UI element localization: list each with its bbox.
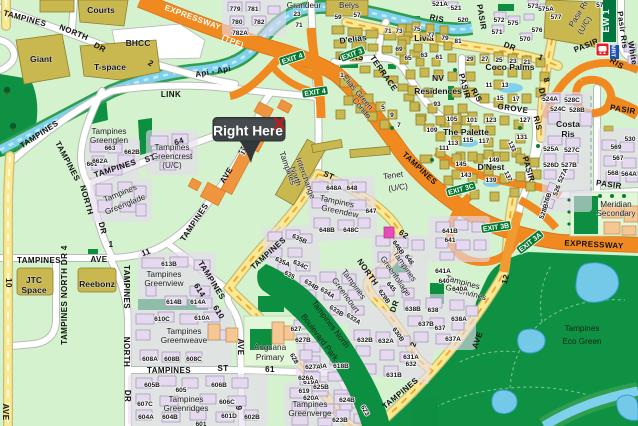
svg-text:Belys: Belys bbox=[339, 1, 359, 10]
svg-text:610C: 610C bbox=[154, 316, 170, 323]
svg-text:57: 57 bbox=[353, 12, 361, 19]
svg-text:Angsana: Angsana bbox=[254, 343, 287, 352]
svg-text:618B: 618B bbox=[333, 363, 349, 370]
svg-text:71: 71 bbox=[384, 28, 392, 35]
svg-text:9: 9 bbox=[234, 406, 243, 411]
svg-text:Greencrest: Greencrest bbox=[152, 152, 193, 161]
svg-text:Greenglen: Greenglen bbox=[90, 136, 129, 145]
svg-text:113: 113 bbox=[448, 140, 459, 147]
svg-text:638B: 638B bbox=[405, 306, 421, 313]
svg-text:EW 1: EW 1 bbox=[601, 9, 612, 33]
svg-text:528B: 528B bbox=[569, 107, 585, 114]
svg-text:637: 637 bbox=[434, 325, 445, 332]
svg-text:610A: 610A bbox=[194, 315, 210, 322]
svg-text:Space: Space bbox=[21, 285, 47, 295]
svg-text:Primary: Primary bbox=[256, 353, 285, 362]
svg-text:Giant: Giant bbox=[30, 54, 52, 64]
svg-text:577: 577 bbox=[550, 14, 561, 21]
svg-text:Greenridges: Greenridges bbox=[163, 404, 208, 413]
svg-text:Tampines: Tampines bbox=[564, 324, 599, 333]
svg-text:602B: 602B bbox=[244, 414, 260, 421]
svg-text:601D: 601D bbox=[221, 413, 237, 420]
svg-text:641A: 641A bbox=[435, 268, 451, 275]
svg-text:571: 571 bbox=[491, 29, 502, 36]
svg-text:520: 520 bbox=[457, 17, 468, 24]
svg-text:63: 63 bbox=[420, 52, 428, 59]
svg-text:614A: 614A bbox=[190, 299, 206, 306]
svg-text:782A: 782A bbox=[232, 30, 248, 37]
svg-text:AVE: AVE bbox=[90, 255, 107, 264]
svg-text:9: 9 bbox=[390, 112, 394, 119]
svg-text:637B: 637B bbox=[418, 321, 434, 328]
svg-text:641: 641 bbox=[444, 237, 455, 244]
svg-text:662A: 662A bbox=[92, 158, 108, 165]
svg-text:79: 79 bbox=[441, 35, 449, 42]
svg-text:Residences: Residences bbox=[414, 86, 462, 96]
svg-text:5: 5 bbox=[381, 104, 385, 111]
svg-text:524C: 524C bbox=[550, 106, 566, 113]
svg-text:631B: 631B bbox=[386, 372, 402, 379]
svg-text:101: 101 bbox=[466, 117, 477, 124]
svg-text:647: 647 bbox=[365, 208, 376, 215]
svg-text:648B: 648B bbox=[319, 227, 335, 234]
svg-text:605: 605 bbox=[175, 387, 186, 394]
svg-text:Ris: Ris bbox=[561, 129, 575, 139]
svg-text:570: 570 bbox=[519, 36, 530, 43]
svg-text:DR: DR bbox=[123, 390, 132, 402]
svg-text:(U/C): (U/C) bbox=[162, 161, 182, 170]
svg-text:648A: 648A bbox=[326, 185, 342, 192]
svg-text:17: 17 bbox=[512, 96, 520, 103]
svg-text:109: 109 bbox=[426, 127, 437, 134]
svg-text:143: 143 bbox=[460, 172, 471, 179]
svg-text:576: 576 bbox=[531, 27, 542, 34]
svg-text:Grandeur: Grandeur bbox=[287, 1, 322, 10]
svg-text:601: 601 bbox=[195, 421, 206, 426]
svg-text:608A: 608A bbox=[142, 356, 158, 363]
svg-text:619: 619 bbox=[298, 388, 309, 395]
svg-text:117: 117 bbox=[479, 138, 490, 145]
svg-text:23: 23 bbox=[509, 58, 517, 65]
svg-text:7: 7 bbox=[397, 122, 401, 129]
svg-text:641B: 641B bbox=[442, 228, 458, 235]
svg-text:115: 115 bbox=[463, 137, 474, 144]
svg-text:73: 73 bbox=[395, 28, 403, 35]
svg-text:Tampines: Tampines bbox=[154, 143, 189, 152]
svg-text:648C: 648C bbox=[343, 227, 359, 234]
svg-text:10: 10 bbox=[4, 278, 13, 288]
svg-text:638: 638 bbox=[427, 307, 438, 314]
svg-text:575A: 575A bbox=[538, 6, 554, 13]
svg-text:608C: 608C bbox=[186, 356, 202, 363]
svg-text:65: 65 bbox=[404, 55, 412, 62]
svg-text:627A: 627A bbox=[305, 364, 321, 371]
svg-text:632B: 632B bbox=[357, 337, 373, 344]
svg-text:627B: 627B bbox=[295, 337, 311, 344]
svg-text:572: 572 bbox=[493, 17, 504, 24]
svg-text:145: 145 bbox=[455, 161, 466, 168]
svg-text:15: 15 bbox=[496, 95, 504, 102]
svg-text:638A: 638A bbox=[451, 316, 467, 323]
svg-text:623B: 623B bbox=[332, 417, 348, 424]
svg-text:1: 1 bbox=[340, 72, 344, 79]
svg-text:149: 149 bbox=[488, 157, 499, 164]
svg-text:21: 21 bbox=[523, 59, 531, 66]
svg-text:606C: 606C bbox=[219, 399, 235, 406]
svg-text:NV: NV bbox=[432, 73, 444, 83]
svg-text:77: 77 bbox=[427, 32, 435, 39]
svg-text:Tampines: Tampines bbox=[91, 127, 126, 136]
svg-text:27: 27 bbox=[481, 56, 489, 63]
svg-text:LINK: LINK bbox=[161, 90, 181, 99]
svg-text:25: 25 bbox=[495, 57, 503, 64]
svg-text:Courts: Courts bbox=[87, 5, 115, 15]
svg-text:AVE: AVE bbox=[1, 403, 10, 420]
svg-text:614B: 614B bbox=[166, 299, 182, 306]
svg-text:631A: 631A bbox=[403, 354, 419, 361]
svg-text:632: 632 bbox=[405, 361, 416, 368]
svg-text:The Palette: The Palette bbox=[443, 127, 489, 137]
svg-text:613B: 613B bbox=[161, 261, 177, 268]
svg-text:TAMPINES: TAMPINES bbox=[122, 265, 131, 309]
svg-text:Eco Green: Eco Green bbox=[562, 337, 602, 346]
svg-text:JTC: JTC bbox=[26, 275, 42, 285]
svg-text:29: 29 bbox=[466, 56, 474, 63]
svg-text:564A: 564A bbox=[621, 171, 637, 178]
svg-text:624B: 624B bbox=[339, 397, 355, 404]
svg-text:131: 131 bbox=[516, 134, 527, 141]
svg-text:620A: 620A bbox=[303, 395, 319, 402]
svg-text:71: 71 bbox=[295, 22, 303, 29]
svg-text:Secondary: Secondary bbox=[596, 209, 636, 218]
svg-text:526D: 526D bbox=[543, 162, 559, 169]
svg-text:604B: 604B bbox=[162, 414, 178, 421]
svg-text:Greenverge: Greenverge bbox=[288, 409, 332, 418]
svg-text:Costa: Costa bbox=[556, 119, 580, 129]
svg-text:TAMPINES: TAMPINES bbox=[147, 366, 191, 375]
svg-text:627: 627 bbox=[290, 326, 301, 333]
svg-text:625B: 625B bbox=[313, 384, 329, 391]
svg-text:75: 75 bbox=[413, 26, 421, 33]
svg-text:605B: 605B bbox=[144, 382, 160, 389]
svg-text:ST: ST bbox=[217, 364, 228, 373]
svg-text:BHCC: BHCC bbox=[126, 38, 151, 48]
svg-text:TAMPINES: TAMPINES bbox=[17, 256, 61, 265]
svg-text:606B: 606B bbox=[211, 382, 227, 389]
svg-text:632A: 632A bbox=[378, 338, 394, 345]
svg-text:T-space: T-space bbox=[94, 62, 126, 72]
svg-text:105: 105 bbox=[446, 116, 457, 123]
svg-text:575: 575 bbox=[507, 20, 518, 27]
svg-text:604A: 604A bbox=[138, 414, 154, 421]
svg-text:11: 11 bbox=[486, 82, 493, 89]
svg-text:780: 780 bbox=[231, 19, 242, 26]
svg-text:Greenview: Greenview bbox=[144, 279, 183, 288]
svg-text:521: 521 bbox=[450, 5, 461, 12]
svg-text:AVE: AVE bbox=[236, 338, 245, 355]
svg-text:139: 139 bbox=[485, 177, 496, 184]
svg-text:NORTH: NORTH bbox=[122, 337, 131, 367]
svg-text:779: 779 bbox=[229, 6, 240, 13]
svg-text:607C: 607C bbox=[137, 401, 153, 408]
svg-text:23: 23 bbox=[293, 11, 301, 18]
svg-text:567: 567 bbox=[612, 155, 623, 162]
svg-text:781: 781 bbox=[247, 6, 258, 13]
svg-text:61: 61 bbox=[265, 365, 275, 374]
svg-text:13: 13 bbox=[501, 82, 509, 89]
svg-text:Tampines: Tampines bbox=[166, 327, 201, 336]
svg-text:Reebonz: Reebonz bbox=[79, 279, 115, 289]
svg-text:81: 81 bbox=[454, 38, 462, 45]
svg-text:61: 61 bbox=[435, 54, 443, 61]
svg-text:637A: 637A bbox=[445, 336, 461, 343]
svg-text:1: 1 bbox=[109, 240, 114, 249]
svg-text:626A: 626A bbox=[298, 375, 314, 382]
svg-text:Greenweave: Greenweave bbox=[161, 336, 208, 345]
svg-text:525A: 525A bbox=[543, 146, 559, 153]
svg-text:648: 648 bbox=[346, 185, 357, 192]
svg-text:608B: 608B bbox=[164, 356, 180, 363]
svg-text:TAMPINES NORTH DR 4: TAMPINES NORTH DR 4 bbox=[60, 245, 69, 345]
svg-text:69: 69 bbox=[395, 46, 403, 53]
svg-text:Tampines: Tampines bbox=[168, 395, 203, 404]
svg-text:640: 640 bbox=[438, 278, 449, 285]
svg-text:663: 663 bbox=[104, 145, 115, 152]
svg-text:524A: 524A bbox=[542, 96, 558, 103]
svg-text:782: 782 bbox=[253, 19, 264, 26]
svg-text:521A: 521A bbox=[432, 1, 448, 8]
svg-text:640A: 640A bbox=[452, 286, 468, 293]
svg-text:568: 568 bbox=[607, 170, 618, 177]
svg-text:662B: 662B bbox=[124, 149, 140, 156]
svg-text:Right Here: Right Here bbox=[213, 124, 283, 139]
svg-text:Meridian: Meridian bbox=[600, 200, 632, 209]
svg-text:528C: 528C bbox=[564, 97, 580, 104]
svg-text:123: 123 bbox=[485, 117, 496, 124]
svg-text:59: 59 bbox=[334, 14, 342, 21]
svg-text:127: 127 bbox=[519, 117, 530, 124]
svg-text:569: 569 bbox=[610, 144, 621, 151]
svg-text:527C: 527C bbox=[564, 147, 580, 154]
svg-text:530: 530 bbox=[624, 136, 635, 143]
svg-text:Tampines: Tampines bbox=[146, 270, 181, 279]
svg-text:MRT: MRT bbox=[610, 45, 616, 58]
svg-text:93: 93 bbox=[433, 101, 441, 108]
